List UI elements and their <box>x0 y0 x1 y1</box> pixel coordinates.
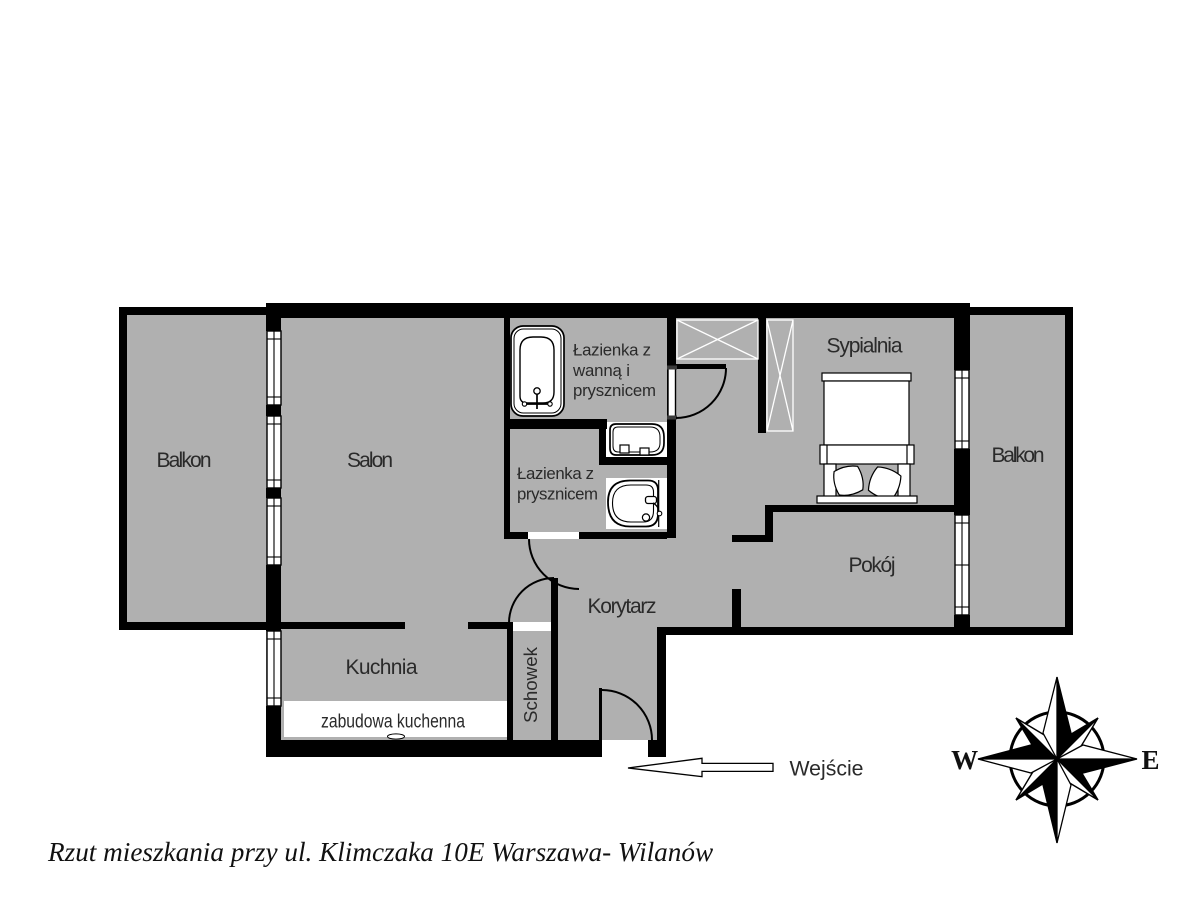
svg-text:Salon: Salon <box>347 449 393 472</box>
svg-text:Rzut mieszkania przy ul. Klimc: Rzut mieszkania przy ul. Klimczaka 10E W… <box>47 837 713 867</box>
svg-text:W: W <box>951 745 978 775</box>
svg-text:Łazienka z: Łazienka z <box>517 464 594 483</box>
svg-text:Sypialnia: Sypialnia <box>827 335 903 358</box>
svg-text:Korytarz: Korytarz <box>588 595 657 618</box>
svg-text:Kuchnia: Kuchnia <box>346 656 418 679</box>
svg-text:prysznicem: prysznicem <box>517 485 598 504</box>
svg-text:Wejście: Wejście <box>790 758 864 781</box>
svg-text:Balkon: Balkon <box>157 449 212 472</box>
svg-text:zabudowa kuchenna: zabudowa kuchenna <box>321 712 465 733</box>
svg-text:Balkon: Balkon <box>992 444 1045 467</box>
svg-text:Łazienka z: Łazienka z <box>573 341 651 360</box>
svg-text:prysznicem: prysznicem <box>573 381 656 400</box>
svg-text:wanną i: wanną i <box>572 361 630 380</box>
svg-text:Schowek: Schowek <box>520 646 541 723</box>
svg-text:Pokój: Pokój <box>849 554 896 577</box>
svg-text:E: E <box>1141 745 1159 775</box>
